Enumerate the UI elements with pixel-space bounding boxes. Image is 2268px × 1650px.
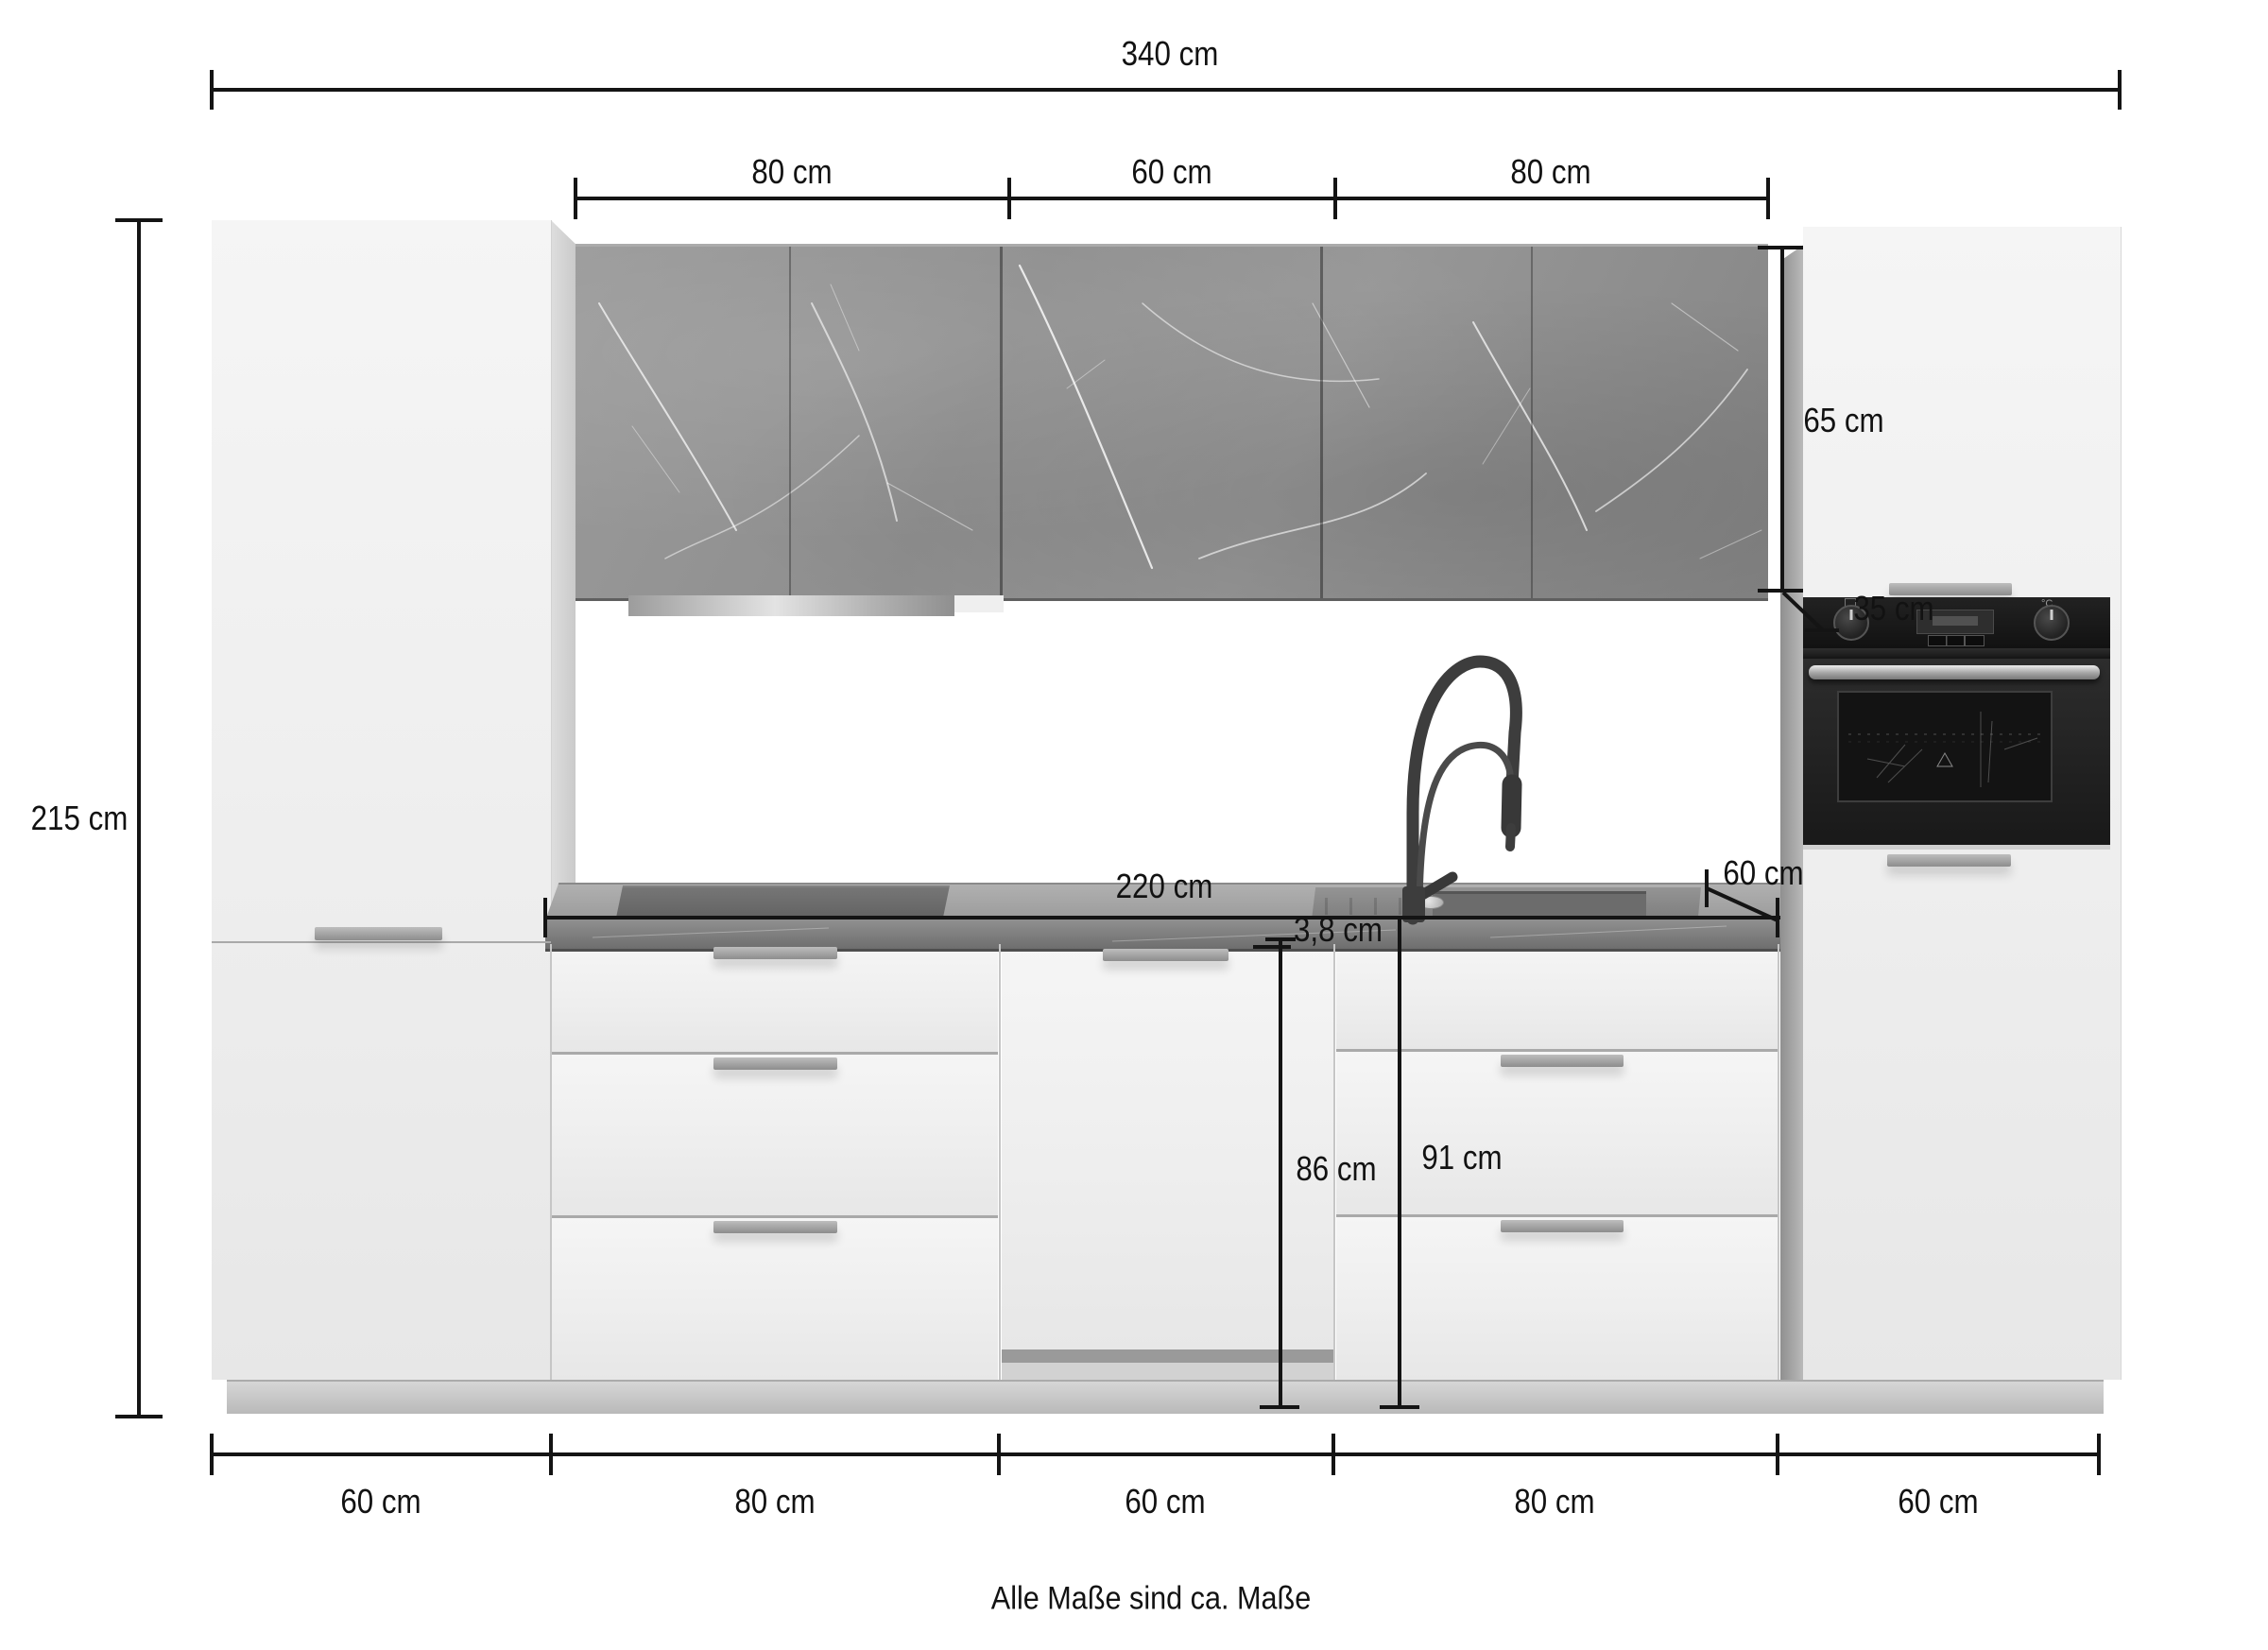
dim-tick: [1333, 178, 1337, 219]
dim-line-base-front-height: [1279, 939, 1282, 1409]
dim-label-total-width: 340 cm: [1122, 34, 1219, 74]
dim-tick: [1766, 178, 1770, 219]
dim-tick: [1758, 246, 1803, 249]
oven-window-reflections: [1839, 693, 2051, 800]
sink-unit-bottom-drawer: [1336, 1217, 1778, 1380]
oven-display-digits: [1933, 616, 1978, 626]
footnote: Alle Maße sind ca. Maße: [991, 1581, 1311, 1618]
extractor-hood: [628, 595, 954, 616]
drawer-split: [552, 1215, 998, 1218]
dim-tick: [1007, 178, 1011, 219]
dim-tick: [115, 1415, 163, 1418]
base-unit-gap: [1778, 944, 1779, 1380]
knob-pointer-icon: [2051, 610, 2053, 620]
oven-door: [1803, 659, 2110, 848]
base-unit-gap: [999, 944, 1001, 1380]
dim-tick: [549, 1434, 553, 1475]
dim-line-total-height: [137, 220, 141, 1418]
wall-cabinet-row: [576, 244, 1768, 601]
dim-tick: [210, 70, 214, 110]
dim-tick: [2118, 70, 2122, 110]
sink-unit-top-front: [1336, 944, 1778, 1049]
dim-label-upper-right: 80 cm: [1510, 152, 1590, 192]
faucet: [1370, 643, 1597, 926]
dim-tick: [997, 1434, 1001, 1475]
tall-cabinet-left-side-panel: [551, 220, 576, 919]
drawer-split: [552, 1052, 998, 1055]
oven-cabinet-lower-door-handle: [1887, 854, 2011, 867]
dishwasher-recess: [1002, 1363, 1333, 1380]
dim-label-wall-depth: 35 cm: [1853, 589, 1933, 628]
dim-tick: [1776, 1434, 1779, 1475]
dim-tick: [1332, 1434, 1335, 1475]
dishwasher-front: [1002, 944, 1333, 1349]
dim-label-base-front-height: 86 cm: [1296, 1149, 1376, 1189]
dim-label-worktop-depth: 60 cm: [1723, 853, 1803, 893]
dim-line-wall-height: [1780, 248, 1784, 591]
dim-tick: [115, 218, 163, 222]
wall-cabinet-unit-gap: [1000, 247, 1003, 598]
oven-door-handle: [1809, 665, 2100, 679]
drawer-split: [1336, 1049, 1778, 1052]
wall-cabinet-door-split: [789, 247, 791, 598]
dim-tick: [210, 1434, 214, 1475]
drawer-handle: [713, 1221, 837, 1233]
dim-tick: [1380, 1405, 1419, 1409]
dim-label-bottom-5: 60 cm: [1898, 1482, 1978, 1521]
oven-panel-gap: [1803, 648, 2110, 659]
wall-cabinet-door-split: [1531, 247, 1533, 598]
drawer-unit-left-top-drawer: [552, 944, 998, 1052]
base-unit-gap: [550, 944, 552, 1380]
plinth: [227, 1380, 2104, 1414]
drawer-split: [1336, 1214, 1778, 1217]
dim-label-worktop-thickness: 3,8 cm: [1294, 910, 1383, 950]
dim-tick-worktop-thickness: [1253, 945, 1291, 949]
kitchen-dimension-diagram: °C 340 cm 80 c: [0, 0, 2268, 1650]
dishwasher-handle: [1103, 949, 1228, 961]
extractor-hood-end-cap: [954, 595, 1004, 612]
dim-label-worktop-length: 220 cm: [1116, 867, 1213, 906]
drawer-handle: [713, 1057, 837, 1070]
oven-bottom-gap: [1803, 845, 2110, 850]
dim-label-upper-left: 80 cm: [751, 152, 832, 192]
drawer-handle: [1501, 1220, 1624, 1232]
dim-line-upper-row: [576, 197, 1769, 200]
dim-arrow-wall-depth: [1777, 576, 1852, 643]
drawer-unit-left-bottom-drawer: [552, 1218, 998, 1380]
dim-line-total-width: [212, 88, 2121, 92]
dim-label-base-total-height: 91 cm: [1421, 1138, 1502, 1177]
dim-tick: [2097, 1434, 2101, 1475]
dim-label-total-height: 215 cm: [31, 799, 129, 838]
dim-label-upper-middle: 60 cm: [1131, 152, 1211, 192]
marble-veins-graphic: [576, 247, 1768, 598]
sink-unit-middle-drawer: [1336, 1052, 1778, 1214]
dim-line-base-total-height: [1398, 917, 1401, 1409]
oven-door-window: [1837, 691, 2053, 802]
dim-line-bottom-row: [212, 1452, 2101, 1456]
dim-tick: [1265, 937, 1296, 941]
drawer-handle: [1501, 1055, 1624, 1067]
dim-tick: [1260, 1405, 1299, 1409]
dim-tick: [574, 178, 577, 219]
cooktop: [616, 885, 950, 918]
oven-temperature-knob: [2034, 605, 2070, 641]
dim-label-bottom-1: 60 cm: [340, 1482, 421, 1521]
oven-display-buttons: [1928, 635, 1984, 646]
dim-label-bottom-3: 60 cm: [1125, 1482, 1205, 1521]
dim-label-wall-height: 65 cm: [1803, 401, 1883, 440]
dim-line-worktop-length: [545, 916, 1780, 920]
dim-tick: [543, 898, 547, 937]
drawer-handle: [713, 947, 837, 959]
drawer-unit-left-middle-drawer: [552, 1055, 998, 1215]
tall-cabinet-left-handle: [315, 927, 442, 940]
dim-label-bottom-4: 80 cm: [1514, 1482, 1594, 1521]
tall-cabinet-left-door-split: [212, 941, 551, 943]
dishwasher-kick-strip: [1002, 1349, 1333, 1363]
dim-label-bottom-2: 80 cm: [734, 1482, 815, 1521]
warning-triangle-icon: [1937, 753, 1952, 766]
wall-cabinet-unit-gap: [1320, 247, 1323, 598]
tall-cabinet-left: [212, 220, 552, 1380]
